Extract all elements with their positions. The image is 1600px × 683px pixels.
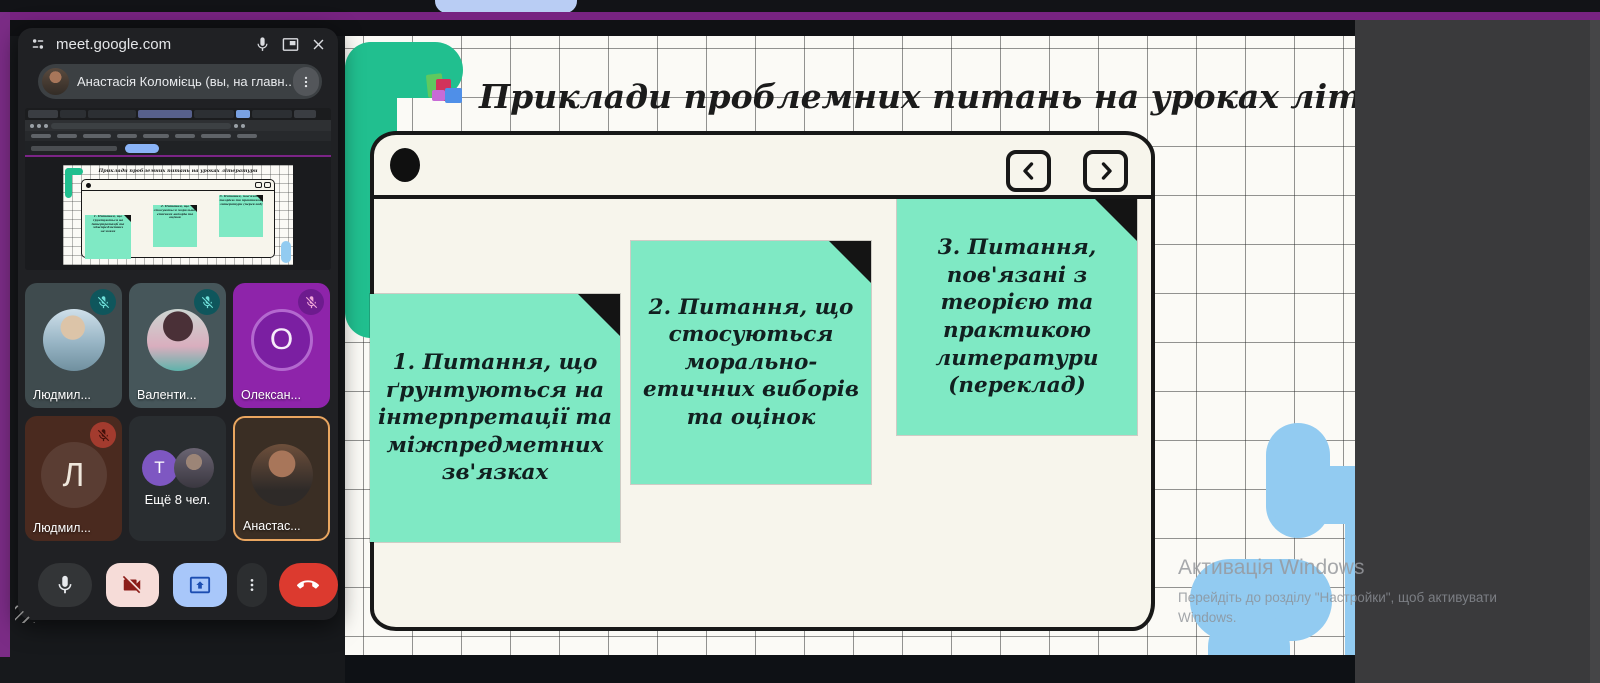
present-button[interactable] — [173, 563, 227, 607]
chevron-left-icon — [1017, 159, 1041, 183]
watermark-line3: Windows. — [1178, 608, 1578, 628]
folded-corner — [829, 241, 871, 283]
participant-name: Людмил... — [33, 388, 91, 402]
mini-slide-title: Приклади проблемних питань на уроках літ… — [63, 168, 293, 174]
more-vert-icon[interactable] — [293, 67, 319, 96]
screen: Приклади проблемних питань на уроках літ… — [0, 0, 1600, 683]
purple-frame-top — [0, 12, 1600, 20]
mic-icon[interactable] — [252, 34, 272, 54]
sticky-note-1-text: 1. Питання, що ґрунтуються на інтерпрета… — [370, 339, 620, 497]
mic-off-icon — [194, 289, 220, 315]
call-controls — [18, 560, 338, 610]
mini-slide: Приклади проблемних питань на уроках літ… — [63, 165, 293, 265]
avatar: О — [251, 309, 313, 371]
windows-activation-watermark: Активація Windows Перейдіть до розділу "… — [1178, 556, 1578, 629]
next-slide-button[interactable] — [1083, 150, 1128, 192]
overflow-count: Ещё 8 чел. — [129, 492, 226, 507]
watermark-line2: Перейдіть до розділу "Настройки", щоб ак… — [1178, 588, 1578, 608]
folded-corner — [1095, 199, 1137, 241]
avatar — [42, 68, 69, 95]
overflow-tile[interactable]: T Ещё 8 чел. — [129, 416, 226, 541]
screenshare-thumbnail[interactable]: Приклади проблемних питань на уроках літ… — [25, 108, 331, 270]
prev-slide-button[interactable] — [1006, 150, 1051, 192]
close-icon[interactable] — [308, 34, 328, 54]
avatar — [251, 444, 313, 506]
pip-icon[interactable] — [280, 34, 300, 54]
participant-grid: Людмил... Валенти... О Олексан... Л — [25, 283, 331, 541]
mic-icon — [54, 574, 76, 596]
meet-titlebar: meet.google.com — [18, 28, 338, 58]
chevron-right-icon — [1094, 159, 1118, 183]
sticky-note-2: 2. Питання, що стосуються морально-етичн… — [631, 241, 871, 484]
videocam-off-icon — [121, 574, 143, 596]
participant-tile-active[interactable]: Анастас... — [233, 416, 330, 541]
mini-note-1: 1. Питання, що ґрунтуються на інтерпрета… — [85, 215, 131, 259]
participant-name: Людмил... — [33, 521, 91, 535]
books-icon — [427, 74, 467, 118]
more-vert-icon — [244, 577, 260, 593]
group-avatars: T — [142, 448, 214, 488]
self-presenting-banner[interactable]: Анастасія Коломієць (вы, на главн... — [38, 64, 322, 99]
participant-name: Анастас... — [243, 519, 301, 533]
meet-window-title: meet.google.com — [56, 36, 244, 53]
mini-browser-toolbar — [25, 120, 331, 131]
avatar: Л — [41, 442, 107, 508]
slide-title: Приклади проблемних питань на уроках літ… — [479, 77, 1355, 116]
participant-tile[interactable]: Валенти... — [129, 283, 226, 408]
mini-page-content: Приклади проблемних питань на уроках літ… — [25, 155, 331, 270]
sticky-note-3: 3. Питання, пов'язані з теорією та практ… — [897, 199, 1137, 435]
slide-bottom-strip — [345, 655, 1355, 683]
participant-tile[interactable]: Л Людмил... — [25, 416, 122, 541]
call-end-icon — [297, 574, 319, 596]
sticky-note-2-text: 2. Питання, що стосуються морально-етичн… — [631, 284, 871, 442]
mini-note-3: 3. Питання, пов'язані з теорією та практ… — [219, 195, 263, 237]
purple-frame-left — [0, 12, 10, 657]
avatar — [43, 309, 105, 371]
blue-squiggle — [1266, 466, 1355, 524]
mic-off-icon — [298, 289, 324, 315]
app-side-panel-edge — [1590, 20, 1600, 683]
mic-button[interactable] — [38, 563, 92, 607]
sticky-note-1: 1. Питання, що ґрунтуються на інтерпрета… — [370, 294, 620, 542]
self-name: Анастасія Коломієць (вы, на главн... — [77, 74, 293, 89]
participant-tile[interactable]: О Олексан... — [233, 283, 330, 408]
mic-off-icon — [90, 422, 116, 448]
sticky-note-3-text: 3. Питання, пов'язані з теорією та практ… — [897, 224, 1137, 409]
mini-browser-tabs — [25, 108, 331, 120]
participant-name: Валенти... — [137, 388, 197, 402]
avatar — [174, 448, 214, 488]
participant-tile[interactable]: Людмил... — [25, 283, 122, 408]
mini-note-2: 2. Питання, що стосуються морально-етичн… — [153, 205, 197, 247]
top-browser-strip — [0, 0, 1600, 12]
mini-page-header — [25, 141, 331, 155]
card-dot — [390, 148, 420, 182]
mic-off-icon — [90, 289, 116, 315]
media-controls-icon[interactable] — [28, 34, 48, 54]
mini-bookmarks-bar — [25, 131, 331, 141]
end-call-button[interactable] — [279, 563, 339, 607]
slide-title-row: Приклади проблемних питань на уроках літ… — [427, 74, 1355, 118]
meet-pip-window: meet.google.com Анастасія Коломієць (вы,… — [18, 28, 338, 620]
card-topbar — [374, 135, 1151, 199]
watermark-title: Активація Windows — [1178, 556, 1578, 580]
mini-blue-button — [125, 144, 159, 153]
more-options-button[interactable] — [237, 563, 267, 607]
participant-name: Олексан... — [241, 388, 301, 402]
present-to-all-icon — [189, 574, 211, 596]
camera-off-button[interactable] — [106, 563, 160, 607]
avatar — [147, 309, 209, 371]
folded-corner — [578, 294, 620, 336]
avatar: T — [142, 450, 178, 486]
